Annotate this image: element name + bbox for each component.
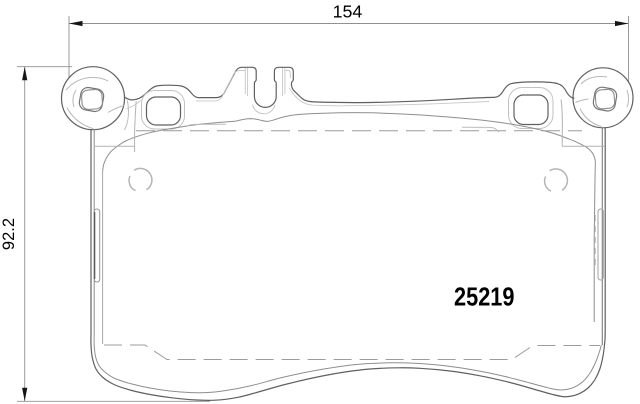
- svg-text:25219: 25219: [454, 282, 515, 312]
- svg-text:92.2: 92.2: [0, 218, 18, 250]
- svg-text:154: 154: [333, 2, 363, 22]
